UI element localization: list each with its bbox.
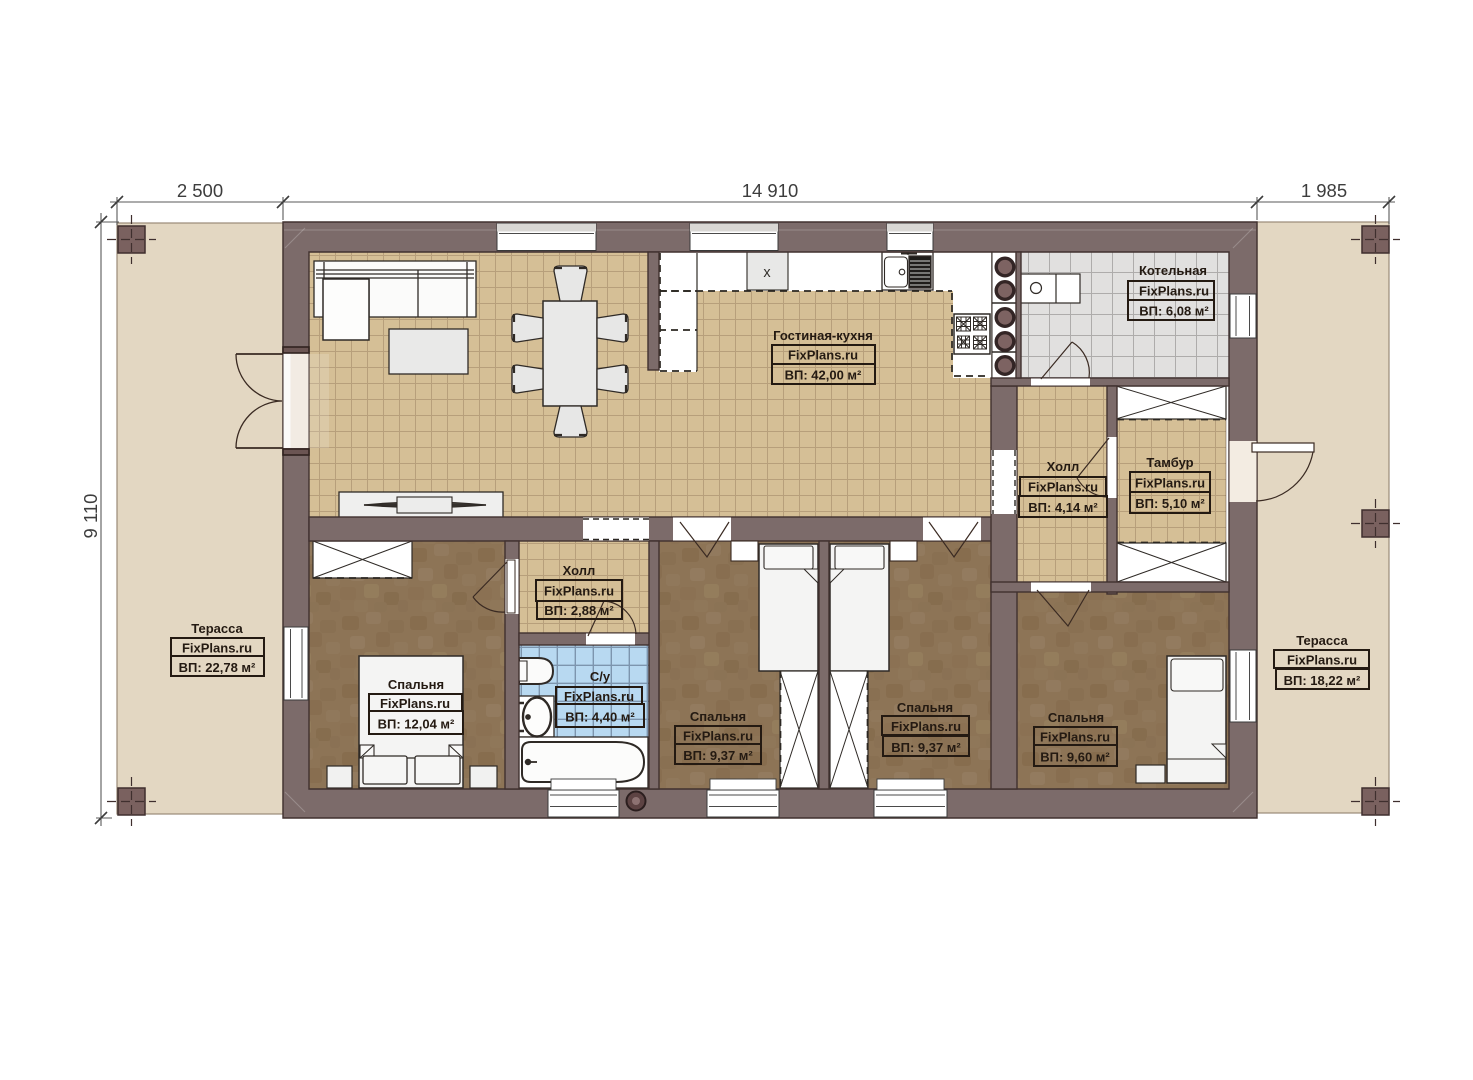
- svg-text:FixPlans.ru: FixPlans.ru: [544, 584, 614, 599]
- svg-text:С/у: С/у: [590, 669, 611, 684]
- svg-text:FixPlans.ru: FixPlans.ru: [564, 689, 634, 704]
- svg-text:ВП: 9,60 м²: ВП: 9,60 м²: [1040, 750, 1110, 765]
- svg-text:FixPlans.ru: FixPlans.ru: [1028, 480, 1098, 495]
- svg-text:FixPlans.ru: FixPlans.ru: [1135, 476, 1205, 491]
- svg-text:Котельная: Котельная: [1139, 263, 1207, 278]
- svg-text:14 910: 14 910: [742, 180, 799, 201]
- svg-text:FixPlans.ru: FixPlans.ru: [182, 641, 252, 656]
- svg-text:FixPlans.ru: FixPlans.ru: [891, 719, 961, 734]
- svg-text:1 985: 1 985: [1301, 180, 1347, 201]
- svg-text:FixPlans.ru: FixPlans.ru: [788, 348, 858, 363]
- svg-text:ВП: 9,37 м²: ВП: 9,37 м²: [891, 740, 961, 755]
- svg-text:Спальня: Спальня: [897, 700, 953, 715]
- svg-text:FixPlans.ru: FixPlans.ru: [1287, 653, 1357, 668]
- svg-text:Терасса: Терасса: [191, 621, 243, 636]
- svg-text:ВП: 42,00 м²: ВП: 42,00 м²: [785, 368, 862, 383]
- svg-text:Спальня: Спальня: [1048, 710, 1104, 725]
- svg-text:ВП: 18,22 м²: ВП: 18,22 м²: [1284, 673, 1361, 688]
- svg-text:ВП: 4,14 м²: ВП: 4,14 м²: [1028, 500, 1098, 515]
- svg-text:FixPlans.ru: FixPlans.ru: [1040, 730, 1110, 745]
- svg-text:ВП: 2,88 м²: ВП: 2,88 м²: [544, 603, 614, 618]
- svg-text:ВП: 22,78 м²: ВП: 22,78 м²: [179, 660, 256, 675]
- svg-text:Спальня: Спальня: [690, 709, 746, 724]
- svg-text:Холл: Холл: [563, 563, 596, 578]
- svg-text:x: x: [763, 265, 771, 281]
- svg-text:ВП: 5,10 м²: ВП: 5,10 м²: [1135, 496, 1205, 511]
- svg-text:2 500: 2 500: [177, 180, 223, 201]
- svg-text:FixPlans.ru: FixPlans.ru: [380, 696, 450, 711]
- svg-text:ВП: 9,37 м²: ВП: 9,37 м²: [683, 748, 753, 763]
- svg-text:ВП: 6,08 м²: ВП: 6,08 м²: [1139, 304, 1209, 319]
- svg-text:Спальня: Спальня: [388, 677, 444, 692]
- svg-text:FixPlans.ru: FixPlans.ru: [1139, 284, 1209, 299]
- svg-text:Тамбур: Тамбур: [1146, 455, 1193, 470]
- svg-text:ВП: 12,04 м²: ВП: 12,04 м²: [378, 717, 455, 732]
- svg-text:Терасса: Терасса: [1296, 633, 1348, 648]
- svg-text:9 110: 9 110: [80, 494, 101, 539]
- svg-text:Холл: Холл: [1047, 459, 1080, 474]
- svg-text:FixPlans.ru: FixPlans.ru: [683, 729, 753, 744]
- svg-text:ВП: 4,40 м²: ВП: 4,40 м²: [565, 710, 635, 725]
- svg-text:Гостиная-кухня: Гостиная-кухня: [773, 328, 873, 343]
